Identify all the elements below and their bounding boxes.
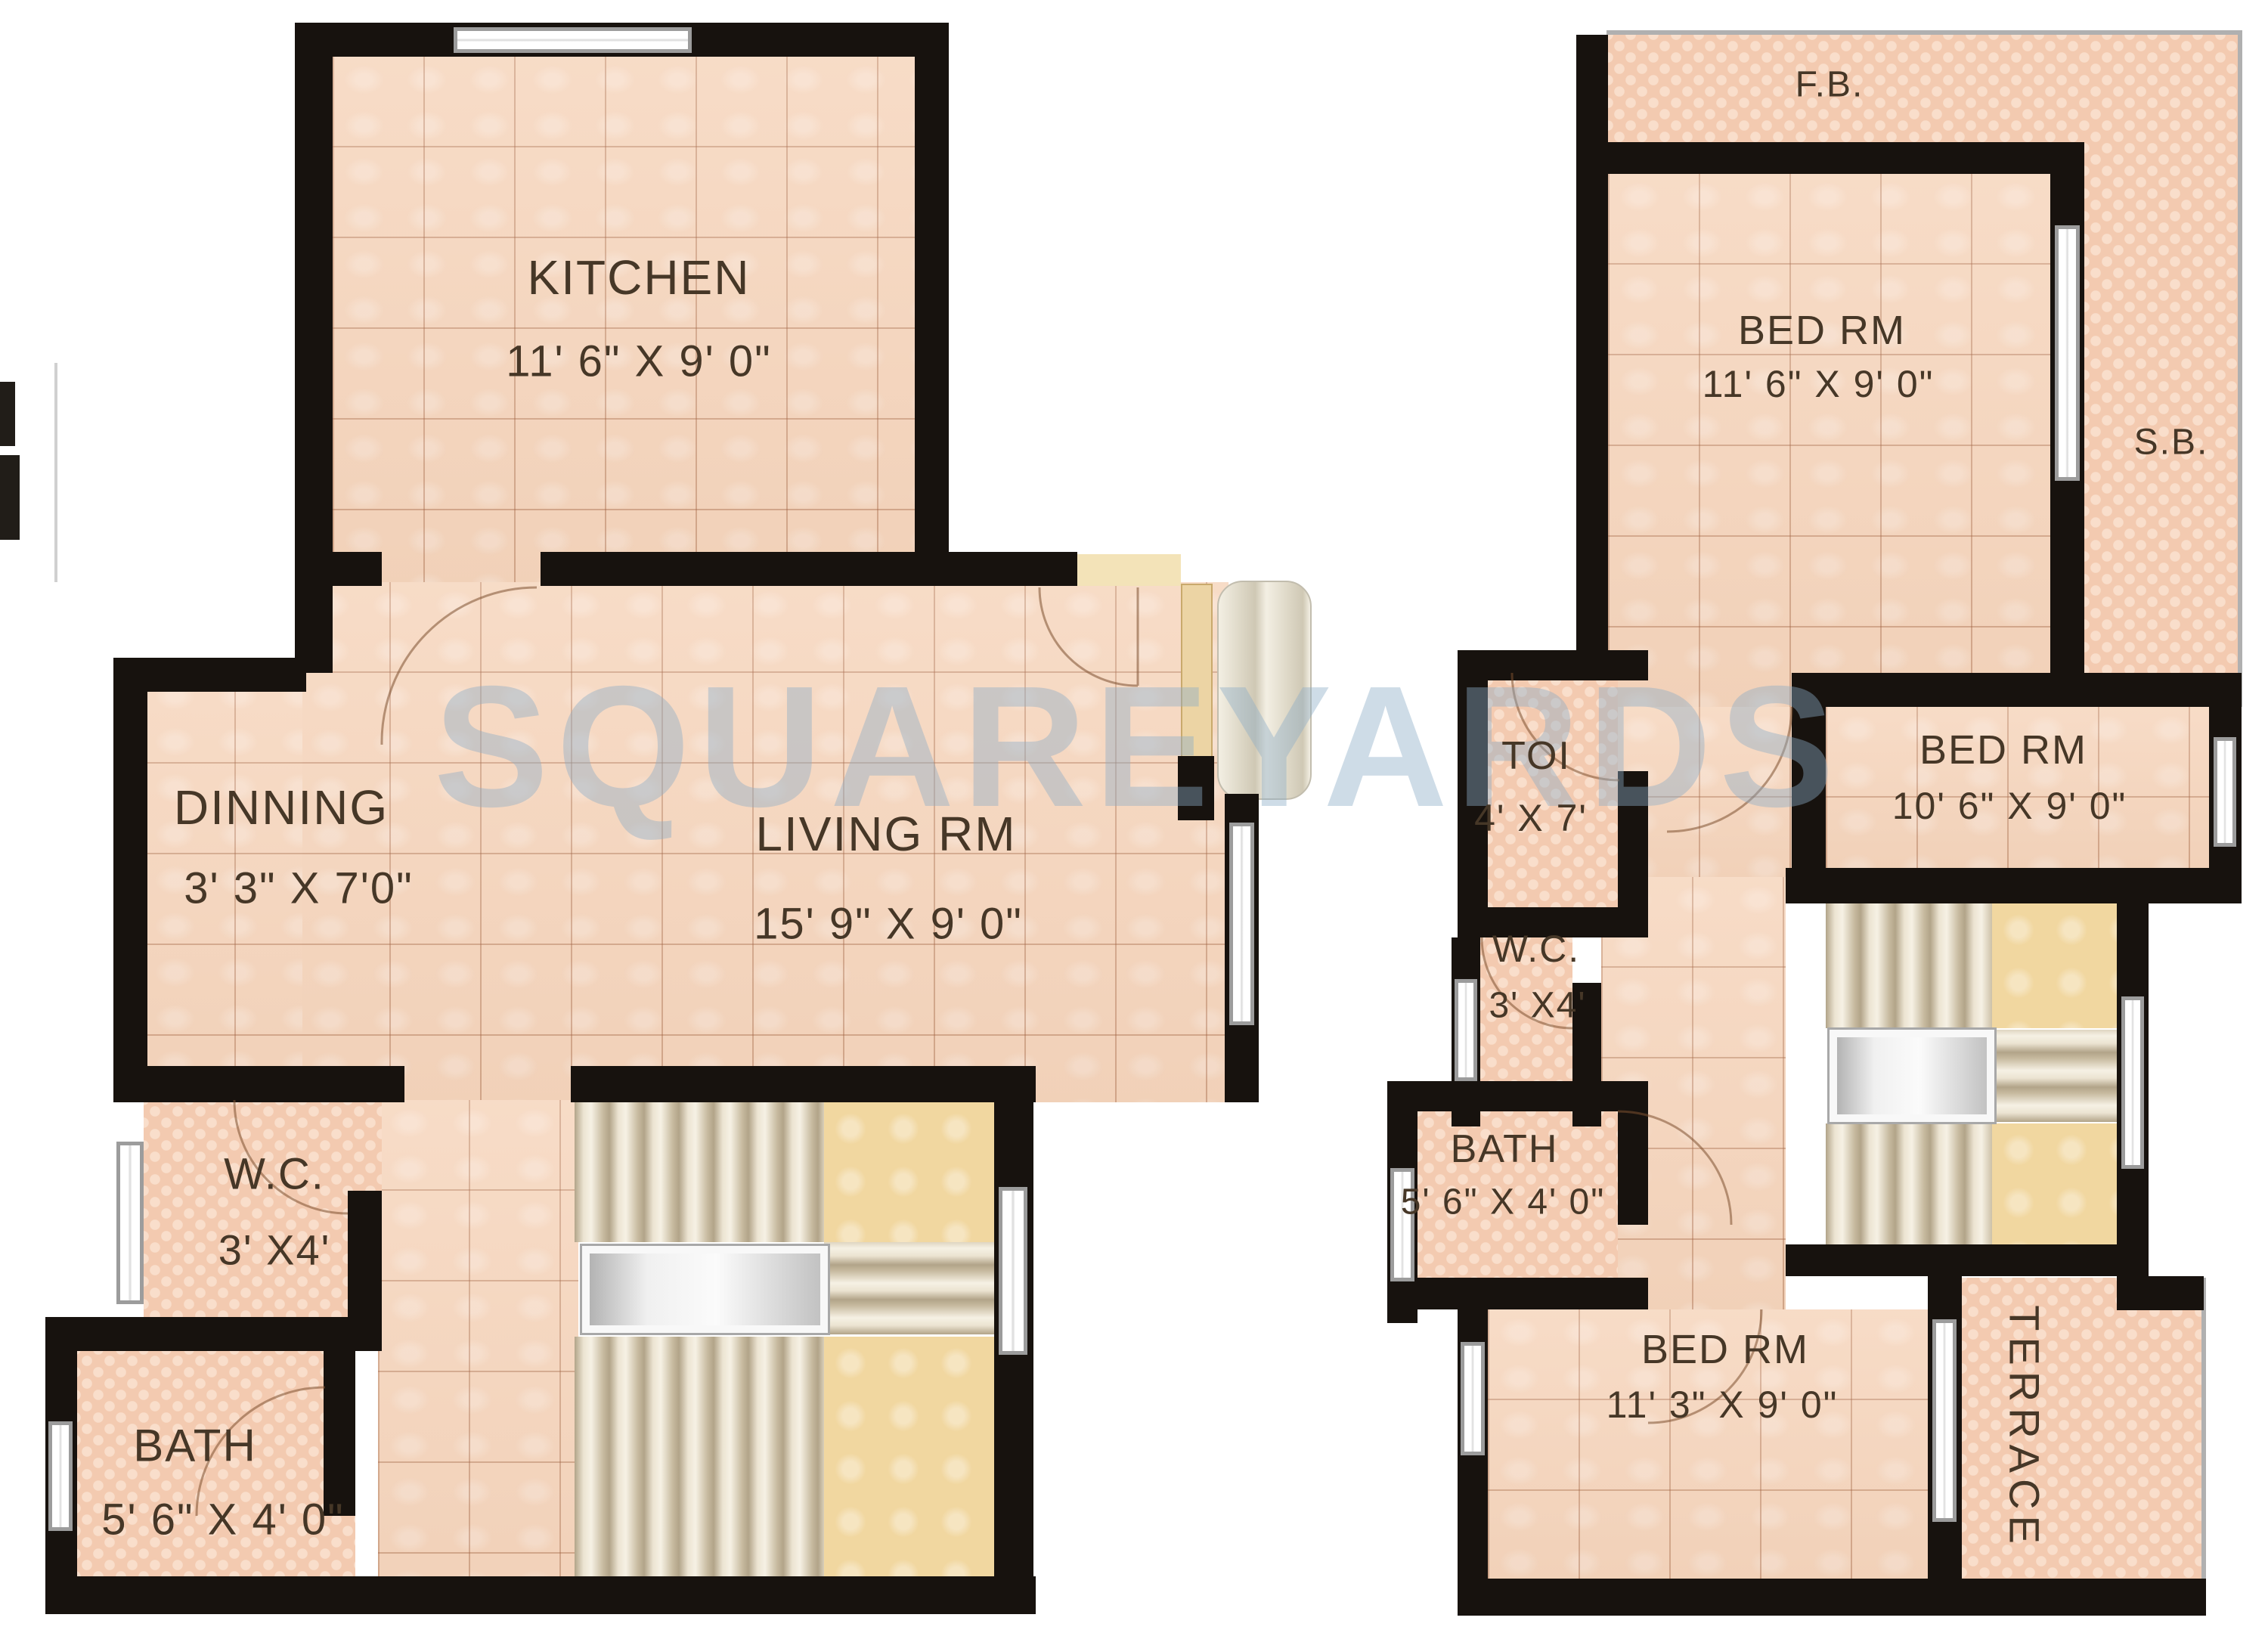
bath-label: BATH — [133, 1420, 257, 1472]
bedroom3-label: BED RM — [1641, 1326, 1809, 1373]
toilet-label: TOI — [1501, 733, 1571, 779]
flower-bed-label: F.B. — [1795, 64, 1864, 106]
bath-door-arc — [1618, 1111, 1731, 1225]
kitchen-dims: 11' 6" X 9' 0" — [506, 336, 771, 387]
bedroom2-label: BED RM — [1919, 727, 2087, 773]
bedroom2-dims: 10' 6" X 9' 0" — [1892, 784, 2127, 828]
wc-dims: 3' X4' — [218, 1226, 331, 1275]
living-room-dims: 15' 9" X 9' 0" — [754, 899, 1023, 950]
bedroom1-label: BED RM — [1738, 307, 1906, 354]
terrace-label: TERRACE — [2000, 1305, 2050, 1550]
wc-label: W.C. — [1492, 927, 1580, 971]
wc-dims: 3' X4' — [1489, 985, 1586, 1027]
dinning-label: DINNING — [174, 779, 389, 835]
squareyards-watermark: SQUAREYARDS — [420, 634, 1856, 860]
bedroom1-dims: 11' 6" X 9' 0" — [1703, 362, 1935, 406]
bath-dims: 5' 6" X 4' 0" — [101, 1495, 345, 1545]
service-balcony-label: S.B. — [2134, 422, 2209, 463]
kitchen-label: KITCHEN — [528, 249, 751, 305]
bath-label: BATH — [1451, 1126, 1559, 1172]
dinning-dims: 3' 3" X 7'0" — [184, 863, 413, 914]
wc-label: W.C. — [224, 1149, 325, 1200]
floor-plan-canvas: SQUAREYARDS KITCHEN 11' 6" X 9' 0" DINNI… — [0, 0, 2268, 1630]
toilet-dims: 4' X 7' — [1474, 796, 1588, 840]
bedroom3-dims: 11' 3" X 9' 0" — [1606, 1383, 1839, 1427]
living-room-label: LIVING RM — [755, 806, 1016, 862]
bath-dims: 5' 6" X 4' 0" — [1401, 1182, 1606, 1223]
